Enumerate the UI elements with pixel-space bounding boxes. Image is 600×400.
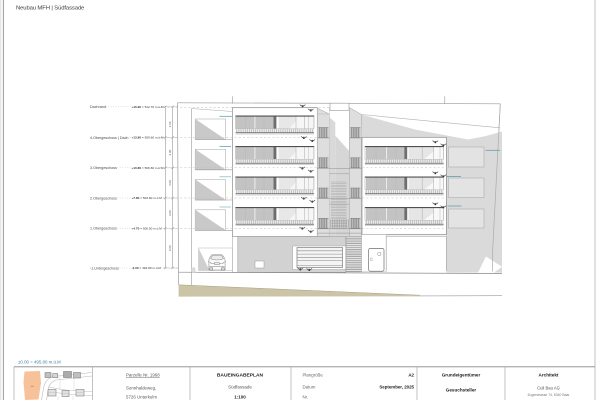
svg-text:5726 Unterkulm: 5726 Unterkulm <box>126 395 157 400</box>
svg-text:Grundeigentümer: Grundeigentümer <box>442 372 481 377</box>
svg-text:4.00: 4.00 <box>168 245 172 251</box>
svg-text:3.00: 3.00 <box>168 180 172 186</box>
svg-text:Dachrand: Dachrand <box>90 105 106 109</box>
svg-text:Datum: Datum <box>303 384 316 389</box>
svg-text:Sonnhaldeweg,: Sonnhaldeweg, <box>126 385 156 390</box>
svg-text:4.Obergeschoss | Dach: 4.Obergeschoss | Dach <box>90 136 128 140</box>
svg-text:3.10: 3.10 <box>168 121 172 127</box>
svg-text:A2: A2 <box>408 372 414 377</box>
svg-text:2.Obergeschoss: 2.Obergeschoss <box>90 196 117 200</box>
svg-text:Südfassade: Südfassade <box>228 384 252 389</box>
svg-text:+4.70 = 500.50 m.ü.M: +4.70 = 500.50 m.ü.M <box>132 227 163 231</box>
svg-text:Neubau MFH | Südfassade: Neubau MFH | Südfassade <box>16 5 85 11</box>
svg-text:Culi Bau AG: Culi Bau AG <box>537 385 560 390</box>
svg-text:BAUEINGABEPLAN: BAUEINGABEPLAN <box>217 372 264 378</box>
svg-text:Plangröße: Plangröße <box>303 372 324 377</box>
svg-text:Zugerstrasse 74, 6340 Baar: Zugerstrasse 74, 6340 Baar <box>527 393 570 397</box>
svg-text:+7.80 = 503.60 m.ü.M: +7.80 = 503.60 m.ü.M <box>132 196 163 200</box>
svg-text:September, 2025: September, 2025 <box>379 384 414 389</box>
svg-text:-1.Untergeschoss: -1.Untergeschoss <box>90 266 119 270</box>
svg-text:1:100: 1:100 <box>234 395 246 400</box>
svg-text:Nr.: Nr. <box>303 395 309 400</box>
svg-text:-3.00 = 492.80 m.ü.M: -3.00 = 492.80 m.ü.M <box>132 266 162 270</box>
svg-text:3.Obergeschoss: 3.Obergeschoss <box>90 166 117 170</box>
svg-text:3.00: 3.00 <box>168 210 172 216</box>
svg-text:Gesuchsteller: Gesuchsteller <box>446 387 477 392</box>
svg-text:Architekt: Architekt <box>539 372 559 377</box>
svg-text:1.Obergeschoss: 1.Obergeschoss <box>90 227 117 231</box>
svg-text:3.00: 3.00 <box>168 149 172 155</box>
svg-text:±0.00 = 495.80 m.ü.M: ±0.00 = 495.80 m.ü.M <box>18 360 61 365</box>
svg-text:Parzelle Nr. 1968: Parzelle Nr. 1968 <box>126 372 160 377</box>
svg-text:​+16.90 = 512.70 m.ü.M: ​+16.90 = 512.70 m.ü.M <box>132 105 164 109</box>
